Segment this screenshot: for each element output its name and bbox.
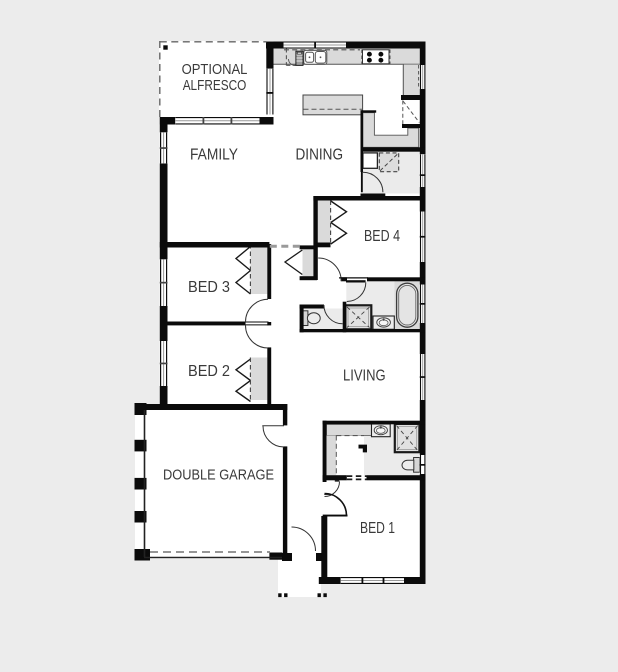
svg-text:BED 4: BED 4 xyxy=(364,228,400,245)
svg-text:LIVING: LIVING xyxy=(343,368,386,385)
svg-text:BED 2: BED 2 xyxy=(188,363,230,380)
svg-text:BED 1: BED 1 xyxy=(360,520,395,537)
svg-text:DOUBLE GARAGE: DOUBLE GARAGE xyxy=(163,468,274,484)
svg-text:ALFRESCO: ALFRESCO xyxy=(183,78,247,94)
svg-text:OPTIONAL: OPTIONAL xyxy=(182,62,248,78)
svg-text:DINING: DINING xyxy=(296,147,344,164)
svg-text:FAMILY: FAMILY xyxy=(190,147,238,164)
svg-text:BED 3: BED 3 xyxy=(188,279,230,296)
